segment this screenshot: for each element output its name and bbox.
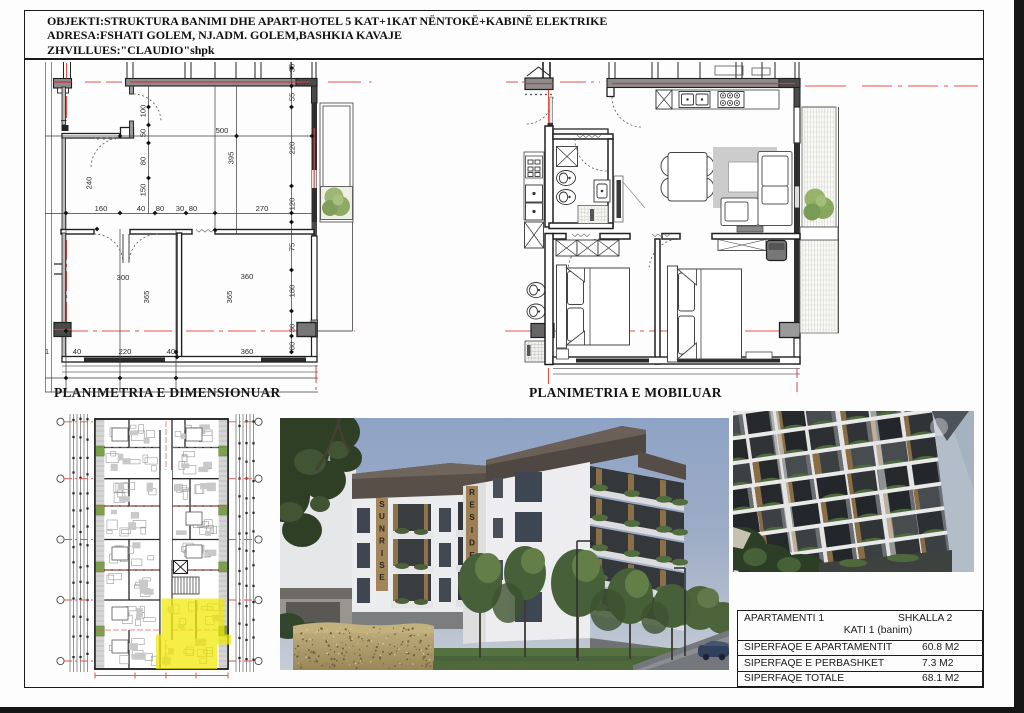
svg-text:80: 80 <box>156 204 164 213</box>
svg-text:S: S <box>379 500 385 509</box>
svg-text:R: R <box>469 488 475 497</box>
svg-text:40: 40 <box>137 204 145 213</box>
svg-text:300: 300 <box>117 273 130 282</box>
svg-text:S: S <box>379 561 385 570</box>
svg-text:D: D <box>469 538 475 547</box>
svg-text:240: 240 <box>85 177 94 190</box>
svg-text:N: N <box>379 524 385 533</box>
svg-text:U: U <box>379 512 385 521</box>
svg-text:180: 180 <box>288 285 297 298</box>
svg-text:365: 365 <box>225 291 234 304</box>
svg-text:80: 80 <box>139 157 148 165</box>
svg-text:270: 270 <box>256 204 269 213</box>
svg-text:35: 35 <box>288 64 297 72</box>
svg-text:100: 100 <box>139 105 148 118</box>
svg-text:360: 360 <box>241 272 254 281</box>
svg-text:40: 40 <box>73 347 81 356</box>
svg-text:150: 150 <box>139 184 148 197</box>
svg-text:30: 30 <box>176 204 184 213</box>
svg-text:500: 500 <box>216 126 229 135</box>
svg-text:120: 120 <box>288 198 297 211</box>
svg-text:E: E <box>469 501 475 510</box>
svg-text:55: 55 <box>288 93 297 101</box>
svg-text:S: S <box>469 513 475 522</box>
svg-text:75: 75 <box>288 243 297 251</box>
svg-text:395: 395 <box>227 152 236 165</box>
svg-text:30: 30 <box>288 324 297 332</box>
svg-text:220: 220 <box>288 142 297 155</box>
svg-text:1: 1 <box>45 347 49 356</box>
svg-text:E: E <box>379 573 385 582</box>
svg-text:220: 220 <box>119 347 132 356</box>
svg-text:160: 160 <box>95 204 108 213</box>
svg-text:I: I <box>471 526 473 535</box>
svg-text:40: 40 <box>167 347 175 356</box>
svg-text:80: 80 <box>288 342 297 350</box>
svg-text:80: 80 <box>189 204 197 213</box>
svg-text:R: R <box>379 537 385 546</box>
svg-text:365: 365 <box>142 291 151 304</box>
svg-text:360: 360 <box>241 347 254 356</box>
svg-text:50: 50 <box>139 129 148 137</box>
svg-text:I: I <box>381 549 383 558</box>
